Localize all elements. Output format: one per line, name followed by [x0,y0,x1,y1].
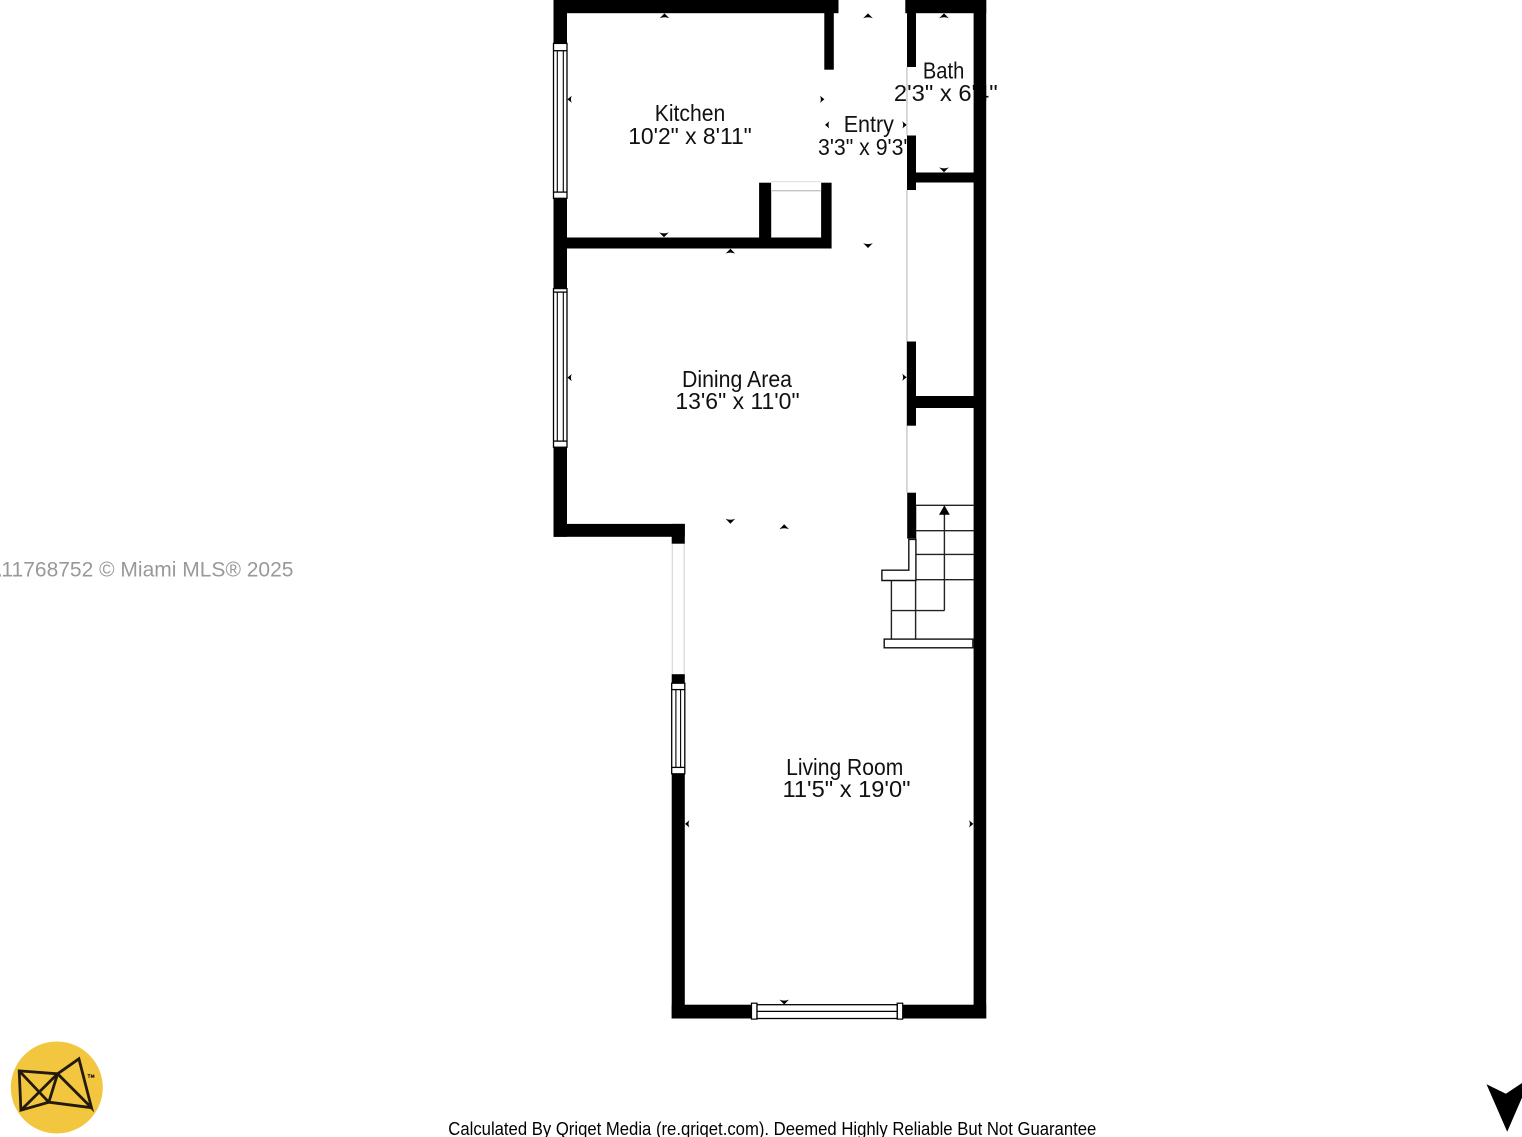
svg-text:A11768752 © Miami MLS® 2025: A11768752 © Miami MLS® 2025 [0,559,293,582]
svg-text:11'5" x 19'0": 11'5" x 19'0" [783,776,911,802]
svg-text:13'6" x 11'0": 13'6" x 11'0" [675,388,799,414]
svg-text:Calculated By Qriqet Media (re: Calculated By Qriqet Media (re.qriqet.co… [448,1119,1096,1137]
svg-text:10'2" x 8'11": 10'2" x 8'11" [628,123,752,149]
svg-text:3'3" x 9'3": 3'3" x 9'3" [818,134,911,160]
